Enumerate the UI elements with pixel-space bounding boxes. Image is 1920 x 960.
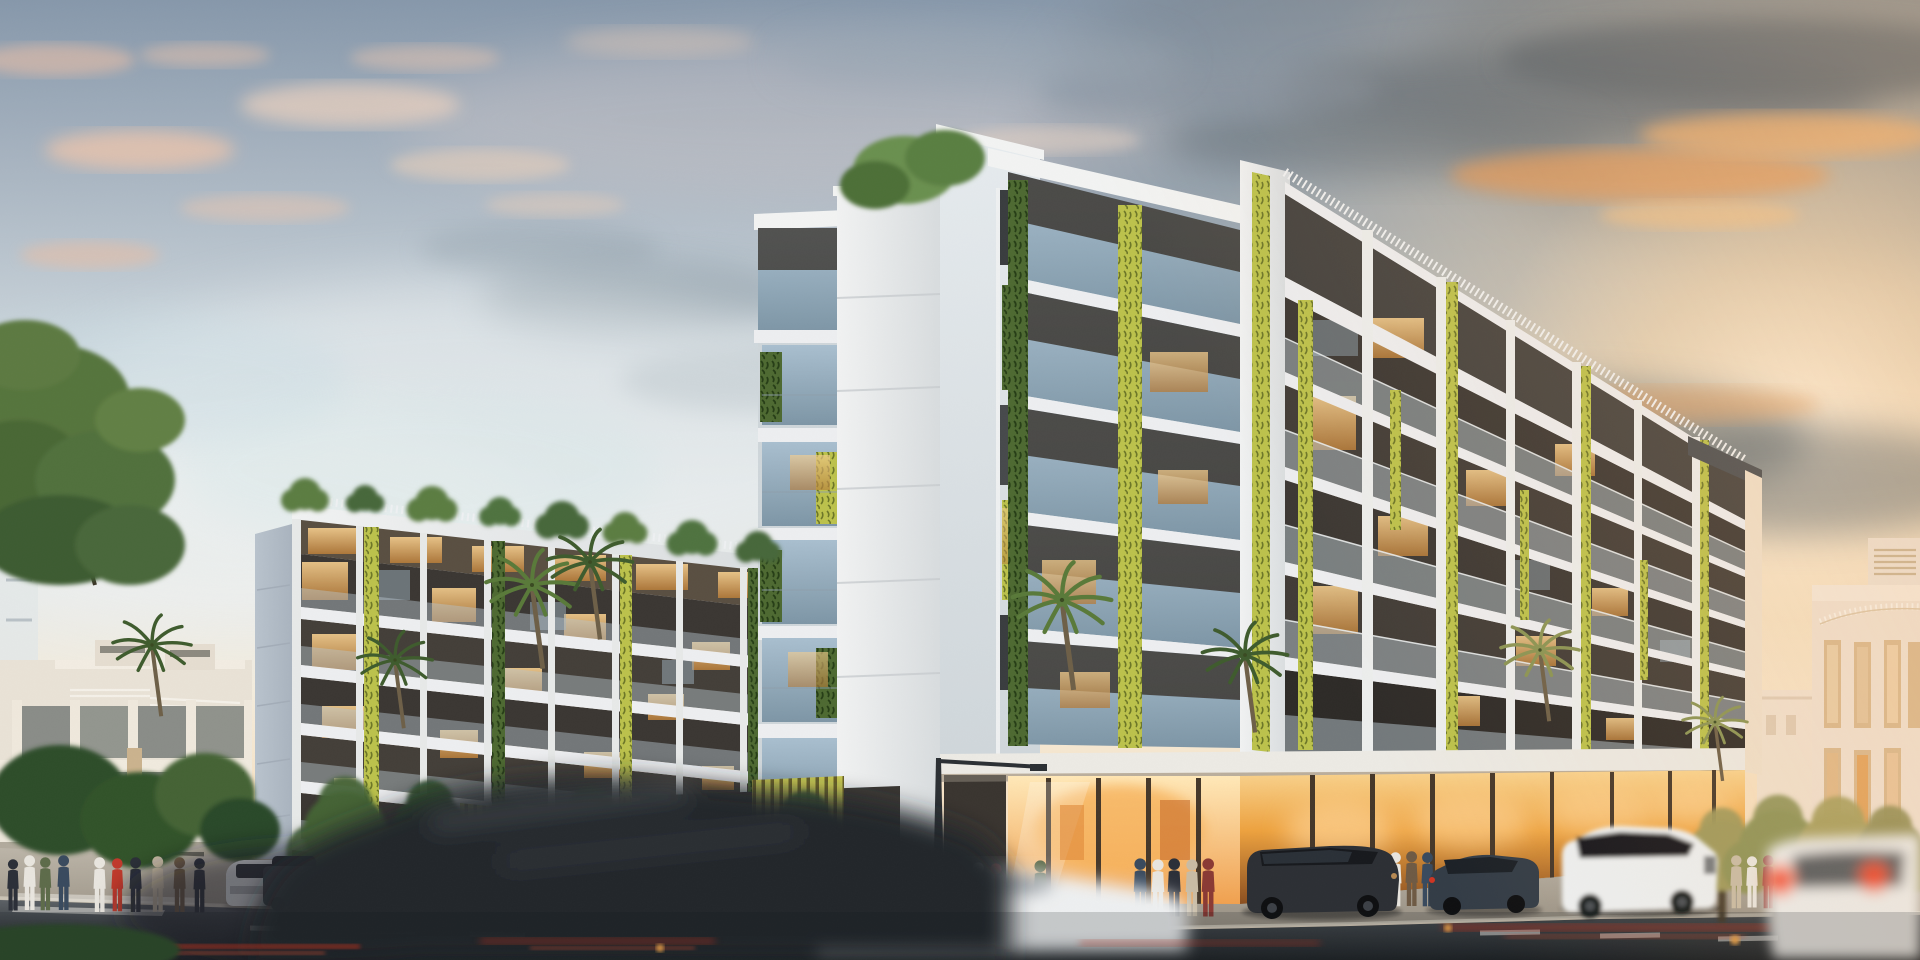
architectural-rendering (0, 0, 1920, 960)
render-canvas (0, 0, 1920, 960)
color-grade (0, 0, 1920, 960)
